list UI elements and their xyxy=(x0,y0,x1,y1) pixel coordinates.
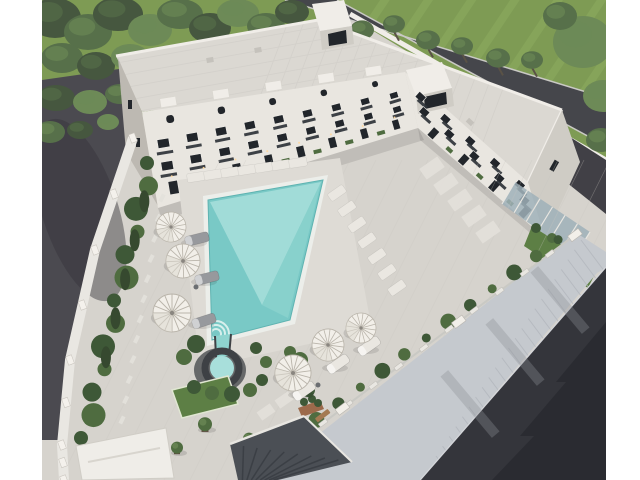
rendered-image xyxy=(0,0,640,480)
window xyxy=(190,154,203,164)
fence-hedge-bush xyxy=(374,363,390,379)
wall-light xyxy=(234,159,236,161)
tree-highlight xyxy=(41,88,62,101)
page-margin-right xyxy=(606,0,640,480)
fence-hedge-bush xyxy=(554,235,563,244)
fence-hedge-bush xyxy=(506,265,522,281)
tree-highlight xyxy=(81,55,102,69)
bush xyxy=(224,386,240,402)
tree-highlight xyxy=(587,83,609,99)
conifer xyxy=(111,307,121,329)
wall-light xyxy=(362,125,364,127)
tree-highlight xyxy=(546,5,565,19)
fence-hedge-bush xyxy=(398,348,410,360)
conifer xyxy=(139,190,149,212)
bush xyxy=(260,356,272,368)
window xyxy=(186,132,199,142)
tree-highlight xyxy=(45,46,68,61)
fence-hedge-bush xyxy=(356,383,365,392)
window xyxy=(215,126,227,136)
tree-highlight xyxy=(221,2,244,16)
side-table xyxy=(194,285,199,290)
wall-light xyxy=(330,133,332,135)
tree-highlight xyxy=(70,123,84,132)
tree-highlight xyxy=(523,53,535,62)
bush xyxy=(531,223,541,233)
wall-light xyxy=(266,150,268,152)
fence-hedge-bush xyxy=(530,250,542,262)
tree-highlight xyxy=(453,39,465,48)
tree-highlight xyxy=(193,16,216,31)
tree-highlight xyxy=(99,116,111,124)
tree-highlight xyxy=(162,2,187,17)
page-margin-left xyxy=(0,0,42,480)
wall-light xyxy=(298,142,300,144)
bush xyxy=(250,342,262,354)
hedge-bush xyxy=(107,294,121,308)
conifer xyxy=(130,229,140,251)
planter-bush xyxy=(314,399,322,407)
tree-highlight xyxy=(385,17,397,26)
hedge-bush xyxy=(83,383,102,402)
umbrella xyxy=(153,294,191,332)
fence-hedge-bush xyxy=(422,333,431,342)
tree-highlight xyxy=(488,50,501,60)
tree-highlight xyxy=(352,22,365,32)
kids-pool-water xyxy=(210,356,234,380)
window xyxy=(157,138,170,149)
conifer xyxy=(101,346,111,368)
bush xyxy=(243,383,257,397)
aerial-render-canvas xyxy=(0,0,640,480)
wall-light xyxy=(394,117,396,119)
bush xyxy=(187,380,201,394)
potted-plant-highlight xyxy=(199,419,206,426)
tree-highlight xyxy=(76,92,95,104)
bush xyxy=(205,386,219,400)
tree-highlight xyxy=(251,16,272,29)
bush xyxy=(176,349,192,365)
tree-highlight xyxy=(98,0,126,17)
conifer xyxy=(120,268,130,290)
wall-light xyxy=(171,175,173,177)
tree-highlight xyxy=(418,32,431,42)
potted-plant-highlight xyxy=(172,443,178,449)
hedge-bush xyxy=(82,403,106,427)
west-window xyxy=(128,100,132,109)
wall-light xyxy=(203,167,205,169)
window xyxy=(161,160,174,171)
side-table xyxy=(316,383,321,388)
tree-highlight xyxy=(589,130,606,142)
window xyxy=(219,147,231,157)
bush xyxy=(187,335,205,353)
tree-highlight xyxy=(278,2,297,14)
tree-highlight xyxy=(69,18,95,36)
hedge-bush xyxy=(140,156,154,170)
tree-highlight xyxy=(132,17,156,33)
bush xyxy=(256,374,268,386)
hedge-bush xyxy=(74,431,88,445)
